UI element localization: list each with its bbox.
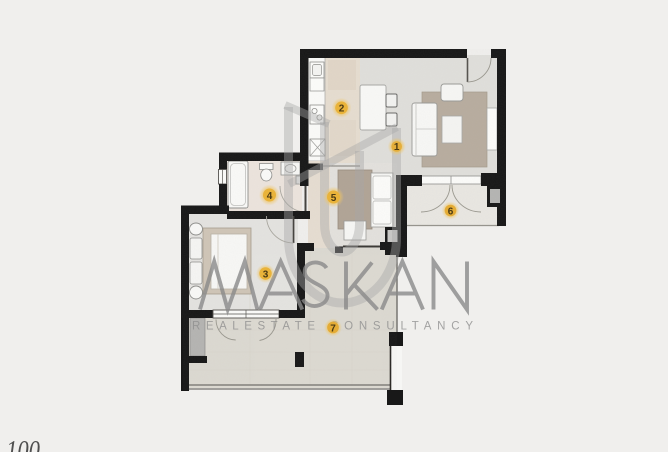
svg-text:100: 100 xyxy=(6,436,40,452)
svg-text:6: 6 xyxy=(448,206,454,217)
svg-text:4: 4 xyxy=(267,191,273,202)
svg-text:7: 7 xyxy=(330,323,336,334)
svg-text:2: 2 xyxy=(339,104,345,115)
svg-text:CONSULTANCY: CONSULTANCY xyxy=(330,321,473,333)
svg-text:1: 1 xyxy=(394,142,400,153)
svg-text:5: 5 xyxy=(331,193,337,204)
svg-text:3: 3 xyxy=(263,269,269,280)
